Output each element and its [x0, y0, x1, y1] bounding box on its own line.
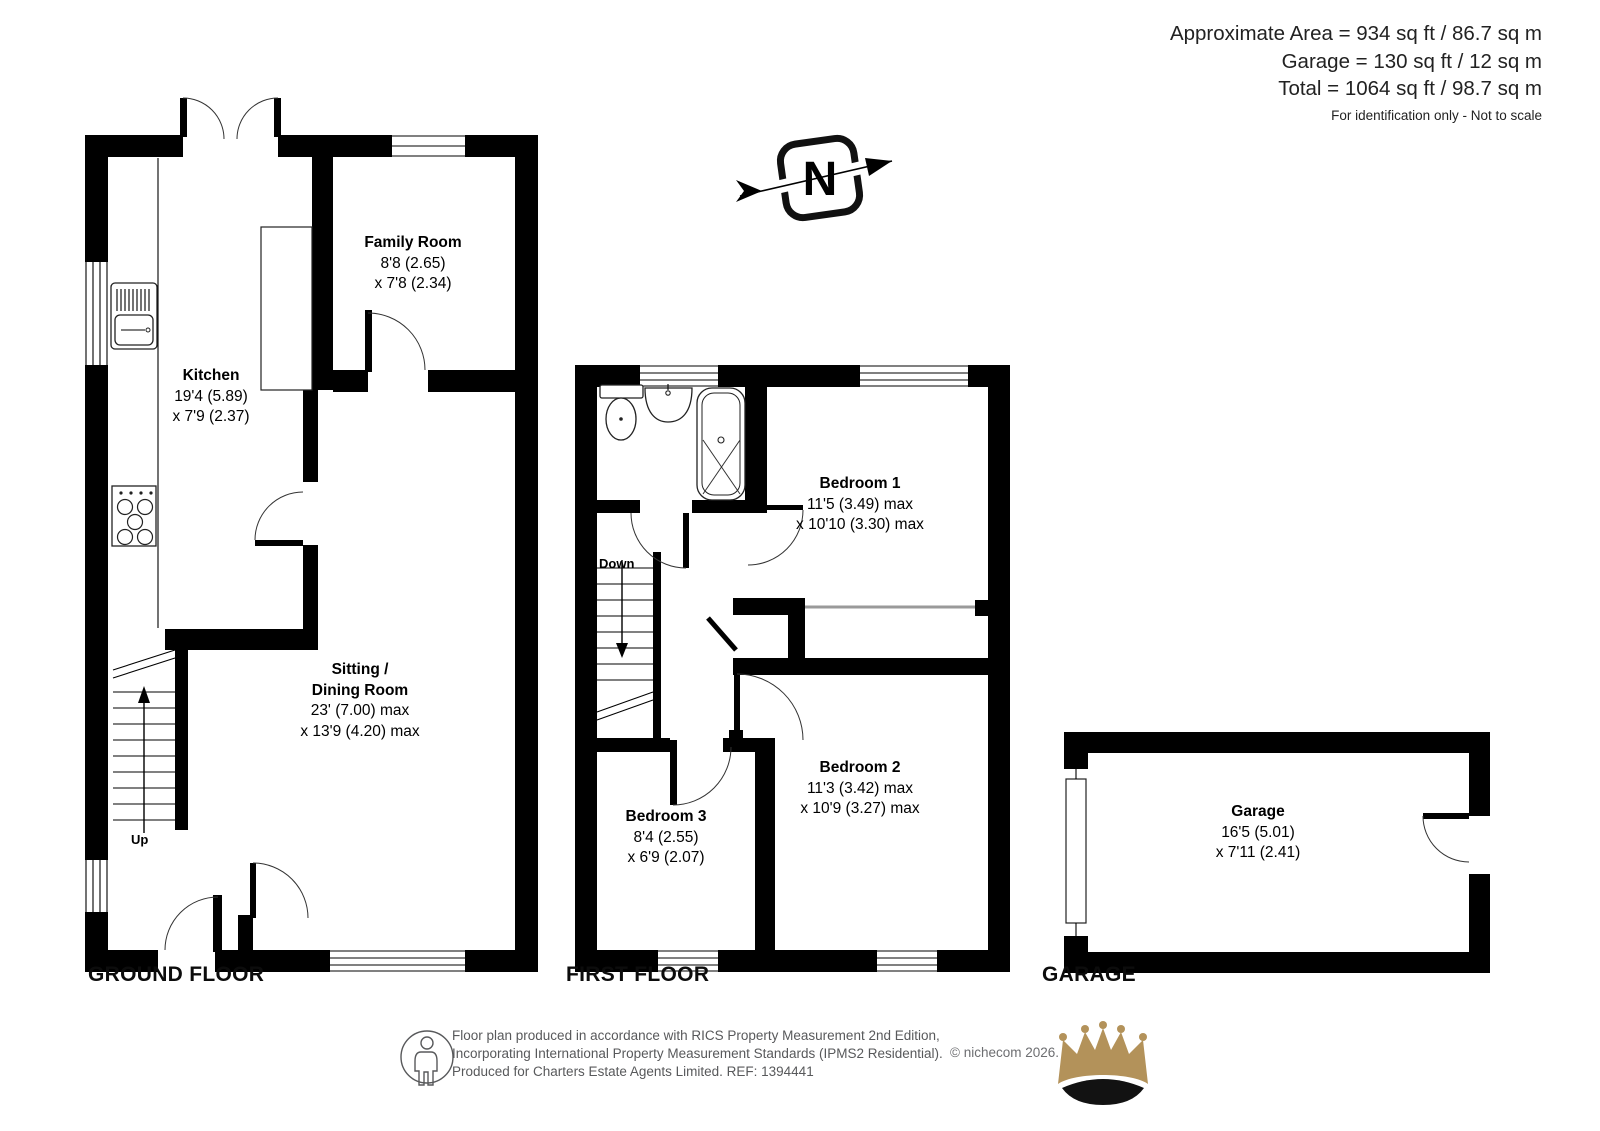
total-area-line: Total = 1064 sq ft / 98.7 sq m — [1170, 75, 1542, 103]
french-door-right-leaf — [274, 98, 281, 137]
stairs-up-label: Up — [131, 832, 148, 847]
kitchen-island-counter — [261, 227, 312, 390]
footer-line-3: Produced for Charters Estate Agents Limi… — [452, 1063, 943, 1081]
basin — [645, 384, 692, 422]
front-door-leaf — [213, 895, 222, 952]
kitchen-sink — [111, 283, 157, 349]
footer-line-2: Incorporating International Property Mea… — [452, 1045, 943, 1063]
bedroom3-door-leaf — [670, 740, 677, 805]
toilet — [600, 385, 643, 440]
garage-area-line: Garage = 130 sq ft / 12 sq m — [1170, 48, 1542, 76]
first-floor-walls — [575, 365, 1010, 972]
ground-floor-stairs — [113, 650, 175, 833]
north-letter: N — [803, 153, 838, 206]
garage-up-and-over-door — [1066, 769, 1086, 936]
first-floor-title: FIRST FLOOR — [566, 963, 709, 987]
crown-logo — [1058, 1021, 1148, 1105]
sitting-dining-label: Sitting / Dining Room 23' (7.00) max x 1… — [300, 660, 419, 742]
bathtub-with-shower — [697, 388, 745, 500]
stairs-down-label: Down — [599, 556, 634, 571]
hall-door-leaf — [250, 863, 256, 918]
north-compass: N — [736, 136, 894, 220]
bedroom1-label: Bedroom 1 11'5 (3.49) max x 10'10 (3.30)… — [796, 474, 924, 536]
footer-disclaimer: Floor plan produced in accordance with R… — [452, 1027, 943, 1081]
floor-plan-drawing: N — [0, 0, 1600, 1131]
bedroom2-label: Bedroom 2 11'3 (3.42) max x 10'9 (3.27) … — [800, 758, 919, 820]
bathroom-fixtures — [600, 384, 745, 500]
family-room-door-leaf — [365, 310, 372, 372]
approximate-area-line: Approximate Area = 934 sq ft / 86.7 sq m — [1170, 20, 1542, 48]
kitchen-hob — [112, 486, 156, 546]
kitchen-door-leaf — [255, 540, 303, 546]
ground-floor-doors — [165, 98, 425, 952]
floor-plan-page: N Approximate Area = 934 sq ft / 86.7 sq… — [0, 0, 1600, 1131]
first-floor-stairs — [597, 560, 653, 720]
area-summary: Approximate Area = 934 sq ft / 86.7 sq m… — [1170, 20, 1542, 123]
nichecom-copyright: © nichecom 2026. — [950, 1045, 1059, 1060]
bedroom2-door-leaf — [734, 674, 740, 740]
footer-line-1: Floor plan produced in accordance with R… — [452, 1027, 943, 1045]
garage-side-door — [1423, 813, 1469, 862]
cupboard-door-leaf — [708, 618, 736, 650]
ground-floor-plan — [85, 98, 538, 972]
bedroom3-label: Bedroom 3 8'4 (2.55) x 6'9 (2.07) — [626, 807, 707, 869]
garage-label: Garage 16'5 (5.01) x 7'11 (2.41) — [1216, 802, 1301, 864]
bathroom-door-leaf — [683, 513, 689, 568]
kitchen-label: Kitchen 19'4 (5.89) x 7'9 (2.37) — [172, 366, 249, 428]
family-room-label: Family Room 8'8 (2.65) x 7'8 (2.34) — [364, 233, 461, 295]
first-floor-plan — [575, 365, 1010, 972]
french-door-left-leaf — [180, 98, 187, 137]
person-scale-icon — [401, 1031, 453, 1085]
ground-floor-title: GROUND FLOOR — [88, 963, 264, 987]
identification-note: For identification only - Not to scale — [1170, 108, 1542, 123]
bedroom1-door-leaf — [748, 505, 803, 510]
garage-title: GARAGE — [1042, 963, 1136, 987]
